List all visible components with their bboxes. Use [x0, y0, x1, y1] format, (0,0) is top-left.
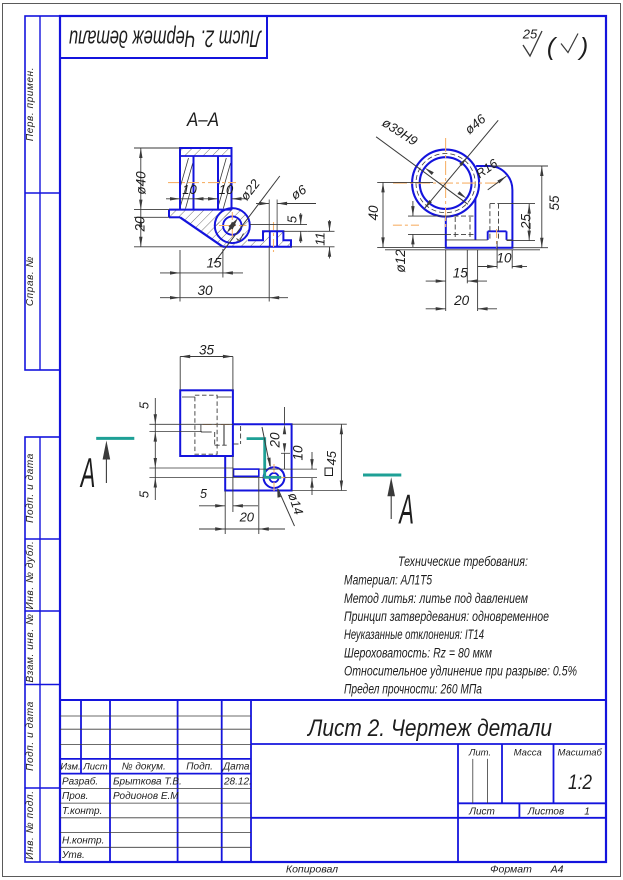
svg-text:Брыткова Т.В.: Брыткова Т.В. — [113, 777, 182, 788]
svg-text:ø40: ø40 — [134, 171, 149, 195]
svg-text:35: 35 — [199, 343, 215, 358]
svg-text:Лист: Лист — [468, 807, 495, 818]
svg-text:10: 10 — [496, 251, 512, 266]
svg-text:Лист: Лист — [82, 762, 108, 773]
svg-text:10: 10 — [182, 182, 197, 197]
svg-text:Лист 2. Чертеж детали: Лист 2. Чертеж детали — [306, 715, 552, 742]
svg-text:45: 45 — [324, 450, 339, 465]
svg-text:Технические требования:: Технические требования: — [398, 554, 528, 569]
svg-text:Неуказанные отклонения: IT14: Неуказанные отклонения: IT14 — [344, 627, 484, 642]
svg-text:Утв.: Утв. — [61, 850, 85, 861]
svg-text:Перв. примен.: Перв. примен. — [25, 67, 36, 141]
svg-text:Подп. и дата: Подп. и дата — [25, 701, 36, 771]
svg-text:А: А — [398, 487, 414, 533]
svg-text:25: 25 — [519, 214, 534, 231]
svg-text:1:2: 1:2 — [568, 771, 592, 794]
svg-text:Масштаб: Масштаб — [558, 748, 603, 759]
svg-text:15: 15 — [453, 266, 469, 281]
svg-text:25: 25 — [522, 27, 538, 42]
svg-text:40: 40 — [366, 205, 381, 221]
svg-text:Копировал: Копировал — [286, 864, 338, 876]
svg-text:Лит.: Лит. — [468, 748, 491, 759]
svg-text:Изм.: Изм. — [60, 762, 80, 773]
svg-text:5: 5 — [137, 401, 152, 409]
svg-text:Масса: Масса — [514, 748, 542, 759]
svg-text:Справ. №: Справ. № — [25, 256, 36, 306]
svg-text:20: 20 — [453, 293, 470, 308]
svg-text:Листов: Листов — [527, 807, 564, 818]
svg-text:А: А — [79, 451, 95, 497]
svg-text:15: 15 — [206, 256, 222, 271]
svg-text:5: 5 — [285, 215, 300, 223]
svg-text:Т.контр.: Т.контр. — [62, 806, 102, 817]
svg-text:20: 20 — [239, 510, 255, 525]
svg-text:№ докум.: № докум. — [122, 762, 166, 773]
svg-text:55: 55 — [547, 195, 562, 211]
svg-text:Взам. инв. №: Взам. инв. № — [25, 613, 36, 682]
svg-text:Разраб.: Разраб. — [62, 776, 98, 788]
svg-text:Подп. и дата: Подп. и дата — [25, 453, 36, 523]
svg-text:Н.контр.: Н.контр. — [62, 836, 104, 847]
svg-text:Лист 2. Чертеж детали: Лист 2. Чертеж детали — [69, 25, 262, 52]
svg-text:5: 5 — [200, 487, 207, 501]
svg-text:Пров.: Пров. — [62, 791, 88, 802]
svg-text:1: 1 — [584, 807, 590, 818]
svg-text:20: 20 — [268, 432, 283, 449]
svg-text:Относительное удлинение при ра: Относительное удлинение при разрыве: 0.5… — [344, 663, 577, 678]
svg-text:ø12: ø12 — [393, 249, 408, 273]
svg-text:11: 11 — [313, 232, 328, 246]
svg-text:Подп.: Подп. — [186, 762, 213, 773]
svg-text:10: 10 — [291, 445, 306, 461]
svg-text:Шероховатость: Rz = 80 мкм: Шероховатость: Rz = 80 мкм — [344, 645, 492, 660]
svg-text:А–А: А–А — [186, 110, 219, 131]
svg-text:Принцип затвердевания: одновре: Принцип затвердевания: одновременное — [344, 609, 549, 624]
svg-text:Материал: АЛ1Т5: Материал: АЛ1Т5 — [344, 573, 432, 588]
svg-text:Родионов Е.М: Родионов Е.М — [113, 791, 179, 802]
svg-text:Инв. № дубл.: Инв. № дубл. — [24, 541, 36, 610]
svg-text:Дата: Дата — [222, 762, 250, 773]
svg-text:Инв. № подл.: Инв. № подл. — [25, 790, 36, 859]
svg-text:5: 5 — [137, 490, 152, 498]
svg-text:28.12.: 28.12. — [223, 777, 252, 788]
svg-text:Метод литья: литье под давлени: Метод литья: литье под давлением — [344, 591, 528, 606]
svg-text:30: 30 — [197, 283, 213, 298]
svg-text:10: 10 — [219, 182, 234, 197]
svg-text:А4: А4 — [550, 864, 564, 876]
svg-text:Формат: Формат — [490, 864, 532, 876]
svg-text:Предел прочности: 260 МПа: Предел прочности: 260 МПа — [344, 682, 482, 697]
svg-text:20: 20 — [133, 216, 148, 233]
